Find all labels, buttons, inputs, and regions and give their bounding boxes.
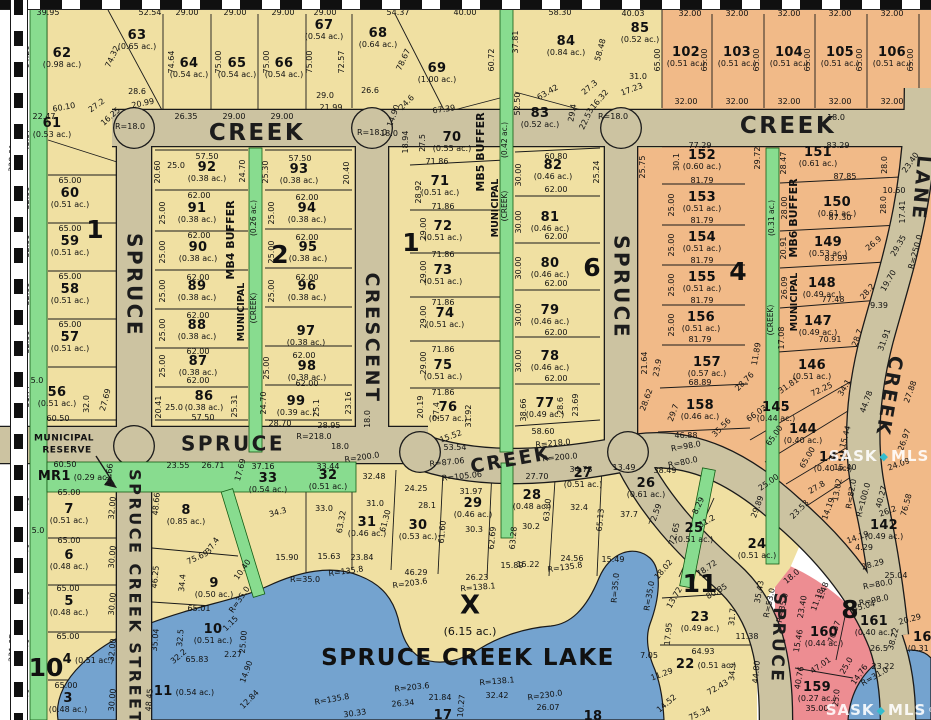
lot-label-63: 63(0.65 ac.) [118,29,156,51]
dimension-label: 23.84 [351,554,374,562]
dimension-label: 30.00 [108,688,118,712]
dimension-label: 18.0 [380,130,398,138]
lot-label-25: 25(0.51 ac.) [675,522,713,544]
buffer-label: (0.31 ac.) [768,200,776,236]
dimension-label: 17.95 [664,622,674,646]
dimension-label: 32.00 [726,98,749,106]
dimension-label: 32.00 [778,98,801,106]
dimension-label: 11.29 [650,667,674,683]
dimension-label: 20.40 [343,162,351,185]
dimension-label: 15.46 [793,629,805,653]
dimension-label: 62.00 [545,186,568,194]
dimension-label: 70.91 [819,336,842,344]
dimension-label: 28.7 [851,328,865,348]
dimension-label: 87.85 [834,173,857,181]
dimension-label: 81.79 [689,336,712,344]
dimension-label: 81.79 [691,257,714,265]
buffer-label: MUNICIPAL [237,283,247,342]
buffer-label: MB5 BUFFER [475,112,487,191]
dimension-label: 76.58 [900,493,914,517]
dimension-label: 32.00 [679,10,702,18]
lot-label-3: 3(0.48 ac.) [49,692,87,714]
dimension-label: 25.31 [231,395,239,418]
dimension-label: 28.0 [881,156,889,174]
lot-label-148: 148(0.49 ac.) [803,277,841,299]
dimension-label: R=135.8 [328,565,364,578]
lot-label-66: 66(0.54 ac.) [265,57,303,79]
dimension-label: 30.2 [522,523,540,531]
dimension-label: 29.89 [750,495,766,519]
dimension-label: 63.42 [536,84,560,103]
dimension-label: 40.27 [875,485,889,509]
dimension-label: 37.4 [204,536,221,555]
lot-label-31: 31(0.46 ac.) [348,516,386,538]
dimension-label: 37.81 [512,31,520,54]
lot-label-97: 97(0.38 ac.) [287,325,325,347]
dimension-label: 65.00 [765,424,785,448]
dimension-label: 32.00 [829,10,852,18]
lot-label-98: 98(0.38 ac.) [288,360,326,382]
lot-label-61: 61(0.53 ac.) [33,117,71,139]
dimension-label: 15.44 [839,425,853,449]
dimension-label: 26.5 [870,645,888,653]
dimension-label: 32.00 [881,10,904,18]
dimension-label: R=135.8 [547,561,583,574]
dimension-label: 25.24 [593,161,601,184]
dimension-label: R=203.6 [392,577,428,590]
dimension-label: 21.64 [641,352,649,375]
dimension-label: 10.27 [457,694,467,718]
lot-label-9: 9(0.50 ac.) [195,577,233,599]
dimension-label: R=100.0 [855,482,872,518]
dimension-label: 29.7 [667,403,681,423]
lot-label-104: 104(0.51 ac.) [770,46,808,68]
lot-label-26: 26(0.61 ac.) [627,477,665,499]
dimension-label: 26.71 [202,462,225,470]
lot-label-102: 102(0.51 ac.) [667,46,705,68]
dimension-label: 31.0 [629,73,647,81]
street-label-crescent: CRESCENT [361,272,381,403]
dimension-label: 31.91 [877,328,893,352]
dimension-label: 61.60 [438,520,448,544]
dimension-label: 5.0 [31,377,44,385]
dimension-label: 62.00 [545,329,568,337]
dimension-label: 20.60 [154,161,162,184]
buffer-label: (CREEK) [250,293,258,324]
dimension-label: 26.07 [537,704,560,712]
dimension-label: 10.60 [883,187,906,195]
dimension-label: 65.00 [57,585,80,593]
dimension-label: 65.00 [654,49,662,72]
mls-diamond-icon: ◆ [880,450,889,463]
lot-label-95: 95(0.38 ac.) [289,241,327,263]
lot-label-85: 85(0.52 ac.) [621,22,659,44]
lot-label-151: 151(0.61 ac.) [799,146,837,168]
dimension-label: R=35.0 [611,573,622,604]
block-number-8: 8 [841,597,858,623]
dimension-label: 23.9 [652,359,663,378]
dimension-label: 28.70 [269,420,292,428]
dimension-label: 30.3 [465,526,483,534]
street-label-spruce: SPRUCE [124,233,145,337]
street-label-creek: CREEK [740,114,836,138]
dimension-label: 29.00 [224,9,247,17]
lot-label-11: 11(0.54 ac.) [154,685,214,699]
dimension-label: 30.00 [515,164,523,187]
dimension-label: 72.57 [338,51,346,74]
lake-x-mark: X [460,592,480,619]
dimension-label: 32.5 [176,629,186,647]
lot-label-142: 142(0.49 ac.) [865,519,903,541]
dimension-label: 27.70 [526,473,549,481]
dimension-label: 62.00 [187,377,210,385]
lot-label-17: 17 [434,709,453,720]
dimension-label: 28.62 [639,388,655,412]
lot-label-106: 106(0.51 ac.) [873,46,911,68]
dimension-label: 71.86 [432,346,455,354]
dimension-label: 38.49 [654,467,677,475]
boundary-hatch-top [0,0,931,10]
dimension-label: 30.33 [343,708,367,719]
dimension-label: R=80.0 [862,578,893,591]
lot-label-57: 57(0.51 ac.) [51,331,89,353]
lot-label-92: 92(0.38 ac.) [188,161,226,183]
dimension-label: 13.72 [666,586,685,610]
block-number-1: 1 [86,217,103,243]
street-label-spruce: SPRUCE [767,592,788,683]
dimension-label: 81.79 [691,177,714,185]
dimension-label: 11.89 [751,342,763,366]
lot-label-60: 60(0.51 ac.) [51,187,89,209]
lot-label-153: 153(0.51 ac.) [683,191,721,213]
lot-label-71: 71(0.51 ac.) [421,175,459,197]
dimension-label: 62.69 [488,526,498,550]
lot-label-84: 84(0.84 ac.) [547,35,585,57]
lot-label-93: 93(0.38 ac.) [280,163,318,185]
lot-label-4: 4(0.51 ac.) [63,653,114,667]
dimension-label: 17.41 [899,201,907,224]
dimension-label: 5.0 [32,527,45,535]
dimension-label: 15.49 [602,556,625,564]
dimension-label: 34.1 [837,378,853,398]
dimension-label: 28.2 [859,282,877,301]
dimension-label: 32.0 [83,395,91,413]
dimension-label: 25.30 [262,161,270,184]
dimension-label: 62.00 [545,375,568,383]
dimension-label: 65.00 [55,682,78,690]
dimension-label: 15.90 [276,554,299,562]
dimension-label: R=98.0 [670,440,701,453]
lot-label-149: 149(0.53 ac.) [809,236,847,258]
lot-label-86: 86(0.38 ac.) [185,390,223,412]
dimension-label: 24.25 [405,485,428,493]
dimension-label: 26.9 [864,235,883,253]
dimension-label: 34.4 [178,574,188,592]
dimension-label: 81.79 [691,217,714,225]
dimension-label: 44.80 [752,660,762,684]
dimension-label: 15.22 [517,561,540,569]
dimension-label: 20.41 [155,396,163,419]
dimension-label: 72.43 [706,679,730,698]
dimension-label: 75.00 [306,51,314,74]
mls-diamond-icon: ◆ [877,704,886,717]
dimension-label: 25.00 [668,314,676,337]
dimension-label: 30.00 [515,304,523,327]
lot-label-88: 88(0.38 ac.) [178,319,216,341]
dimension-label: 30.00 [515,211,523,234]
dimension-label: 25.00 [159,202,167,225]
lot-label-27: 27(0.51 ac.) [564,467,602,489]
dimension-label: 27.88 [903,380,919,404]
dimension-label: 32.48 [363,473,386,481]
block-number-2: 2 [271,242,288,268]
dimension-label: 28.0 [880,196,888,214]
dimension-label: R=18.0 [115,123,145,131]
dimension-label: R=203.6 [394,682,430,694]
lot-label-28: 28(0.48 ac.) [513,489,551,511]
lake-name: SPRUCE CREEK LAKE [321,646,615,670]
dimension-label: 25.00 [159,241,167,264]
dimension-label: 40.00 [454,9,477,17]
dimension-label: 71.86 [432,389,455,397]
dimension-label: 11.38 [736,633,759,641]
lot-label-103: 103(0.51 ac.) [718,46,756,68]
dimension-label: 26.6 [361,87,379,95]
dimension-label: 27.5 [419,134,427,152]
dimension-label: 65.01 [188,605,211,613]
dimension-label: 31.0 [366,500,384,508]
dimension-label: 26.09 [781,277,789,300]
lot-label-152: 152(0.60 ac.) [683,149,721,171]
dimension-label: 30.00 [108,545,118,569]
lot-label-30: 30(0.53 ac.) [399,519,437,541]
buffer-label: MUNICIPAL [790,273,800,332]
dimension-label: 72.59 [648,503,664,527]
dimension-label: 29.00 [272,9,295,17]
lot-label-78: 78(0.46 ac.) [531,350,569,372]
dimension-label: 29.4 [567,104,578,123]
street-label-spruce: SPRUCE [611,235,632,339]
lot-label-29: 29(0.46 ac.) [454,497,492,519]
lot-label-70: 70(0.55 ac.) [433,131,471,153]
dimension-label: 23.55 [167,462,190,470]
dimension-label: 28.6 [128,88,146,96]
lot-label-72: 72(0.51 ac.) [424,220,462,242]
dimension-label: 44.78 [859,390,875,414]
dimension-label: 29.00 [176,9,199,17]
dimension-label: 30.1 [673,153,681,171]
dimension-label: 23.69 [572,394,580,417]
lot-label-154: 154(0.51 ac.) [683,231,721,253]
dimension-label: R=218.0 [296,433,331,441]
lot-label-64: 64(0.54 ac.) [170,57,208,79]
dimension-label: 65.00 [59,225,82,233]
block-number-10: 10 [29,655,64,681]
dimension-label: 25.00 [268,280,276,303]
lot-label-82: 82(0.46 ac.) [534,159,572,181]
dimension-label: 25.00 [239,630,249,654]
lot-label-83: 83(0.52 ac.) [521,107,559,129]
lot-label-160: 160(0.44 ac.) [805,626,843,648]
lot-label-156: 156(0.51 ac.) [682,311,720,333]
dimension-label: 71.86 [432,203,455,211]
dimension-label: 23.53 [789,499,811,521]
dimension-label: R=35.0 [290,576,320,584]
dimension-label: 58.60 [532,428,555,436]
street-label-spruce: SPRUCE [181,434,285,455]
lot-label-157: 157(0.57 ac.) [688,356,726,378]
dimension-label: 4.29 [855,544,873,552]
street-label-creek: CREEK [871,354,905,438]
dimension-label: 15.63 [318,553,341,561]
buffer-label: MB6 BUFFER [788,178,800,257]
dimension-label: 71.86 [432,251,455,259]
dimension-label: 64.93 [692,648,715,656]
dimension-label: 30.00 [108,592,118,616]
dimension-label: 57.50 [192,414,215,422]
dimension-label: 48.66 [152,492,162,516]
dimension-label: 24.70 [239,160,247,183]
municipal-reserve-label-line2: RESERVE [42,446,91,455]
buffer-label: (CREEK) [767,305,775,336]
sask-mls-watermark: SASK◆MLS® [829,447,931,465]
dimension-label: 29.72 [754,147,762,170]
dimension-label: 27.8 [807,480,827,496]
dimension-label: R=200.0 [344,451,380,464]
lot-label-150: 150(0.61 ac.) [818,196,856,218]
lot-label-7: 7(0.51 ac.) [50,503,88,525]
dimension-label: 32.4 [570,504,588,512]
dimension-label: 25.00 [668,274,676,297]
dimension-label: 25.00 [159,319,167,342]
dimension-label: R=135.8 [314,693,350,707]
dimension-label: 18.02 [653,559,674,582]
dimension-label: R=138.1 [479,676,515,687]
dimension-label: 58.48 [594,38,608,62]
lot-label-6: 6(0.48 ac.) [50,549,88,571]
dimension-label: 46.88 [675,432,698,440]
dimension-label: 31.7 [728,608,738,626]
lot-label-158: 158(0.46 ac.) [681,399,719,421]
dimension-label: 14.90 [386,104,402,128]
dimension-label: R=35.0 [643,580,656,611]
dimension-label: 46.25 [151,565,161,589]
lot-label-68: 68(0.64 ac.) [359,27,397,49]
dimension-label: 62.00 [545,233,568,241]
dimension-label: 17.69 [234,458,248,482]
dimension-label: 25.0 [167,162,185,170]
lot-label-5: 5(0.48 ac.) [50,595,88,617]
dimension-label: 60.50 [47,415,70,423]
dimension-label: 65.00 [58,537,81,545]
dimension-label: 25.00 [268,202,276,225]
dimension-label: 67.39 [432,104,456,115]
dimension-label: 29.0 [316,92,334,100]
dimension-label: 32.00 [108,496,118,520]
lot-label-79: 79(0.46 ac.) [531,304,569,326]
dimension-label: 65.00 [57,633,80,641]
lot-label-105: 105(0.51 ac.) [821,46,859,68]
dimension-label: 37.7 [620,511,638,519]
lot-label-81: 81(0.46 ac.) [531,211,569,233]
dimension-label: 31.97 [460,488,483,496]
dimension-label: 14.19 [821,497,837,521]
boundary-hatch-left [10,0,28,720]
municipal-reserve-label-line1: MUNICIPAL [34,434,94,443]
dimension-label: R=87.06 [429,457,465,469]
street-label-creek: CREEK [209,121,305,145]
buffer-label: MB4 BUFFER [225,200,237,279]
dimension-label: 78.67 [395,48,412,72]
lot-label-87: 87(0.38 ac.) [179,355,217,377]
lot-label-58: 58(0.51 ac.) [51,283,89,305]
dimension-label: 65.00 [59,177,82,185]
dimension-label: 65.00 [58,489,81,497]
lot-label-73: 73(0.51 ac.) [424,264,462,286]
dimension-label: 26.35 [175,113,198,121]
dimension-label: 60.72 [488,49,496,72]
dimension-label: 23.40 [797,595,809,619]
dimension-label: 32.00 [778,10,801,18]
dimension-label: 75.34 [688,705,712,720]
dimension-label: 58.30 [549,9,572,17]
plat-map-canvas[interactable]: 39.9552.5429.0029.0029.0029.0054.3740.00… [0,0,931,720]
dimension-label: 27.69 [99,388,113,412]
dimension-label: 28.47 [780,152,788,175]
dimension-label: 10.40 [233,558,253,582]
dimension-label: 20.19 [417,396,425,419]
dimension-label: 1.48 [817,581,831,601]
sask-mls-watermark: SASK◆MLS® [826,701,931,719]
lot-label-99: 99(0.39 ac.) [277,395,315,417]
dimension-label: 29.35 [890,234,909,258]
dimension-label: 25.0 [839,656,855,676]
dimension-label: 65.83 [186,656,209,664]
dimension-label: 60.50 [54,461,77,469]
lot-label-24: 24(0.51 ac.) [738,538,776,560]
dimension-label: 22.53 [578,107,595,131]
street-label-spruce-creek-street: SPRUCE CREEK STREET [126,469,143,720]
dimension-label: 20.99 [131,98,155,111]
dimension-label: 18.94 [402,131,410,154]
dimension-label: 32.00 [675,98,698,106]
dimension-label: 62.00 [545,280,568,288]
lot-label-74: 74(0.51 ac.) [426,307,464,329]
dimension-label: 25.00 [757,473,781,493]
dimension-label: 25.00 [668,194,676,217]
lot-label-159: 159(0.27 ac.) [798,681,836,703]
lot-label-65: 65(0.54 ac.) [218,57,256,79]
dimension-label: 34.3 [268,507,287,520]
dimension-label: 71.86 [426,158,449,166]
lot-label-8: 8(0.85 ac.) [167,504,205,526]
lot-label-56: 56(0.51 ac.) [38,386,76,408]
lot-label-59: 59(0.51 ac.) [51,235,89,257]
dimension-label: 30.00 [515,257,523,280]
dimension-label: 8.29 [691,496,706,516]
dimension-label: 65.00 [59,273,82,281]
block-number-4: 4 [729,259,746,285]
dimension-label: 27.2 [87,97,106,114]
dimension-label: 18.0 [782,568,801,586]
dimension-label: 32.00 [829,98,852,106]
lot-label-62: 62(0.98 ac.) [43,47,81,69]
buffer-label: (CREEK) [501,191,509,222]
dimension-label: 63.32 [336,510,348,534]
dimension-label: 65.13 [596,508,606,532]
lot-label-33: 33(0.54 ac.) [249,472,287,494]
dimension-label: 62.00 [188,232,211,240]
